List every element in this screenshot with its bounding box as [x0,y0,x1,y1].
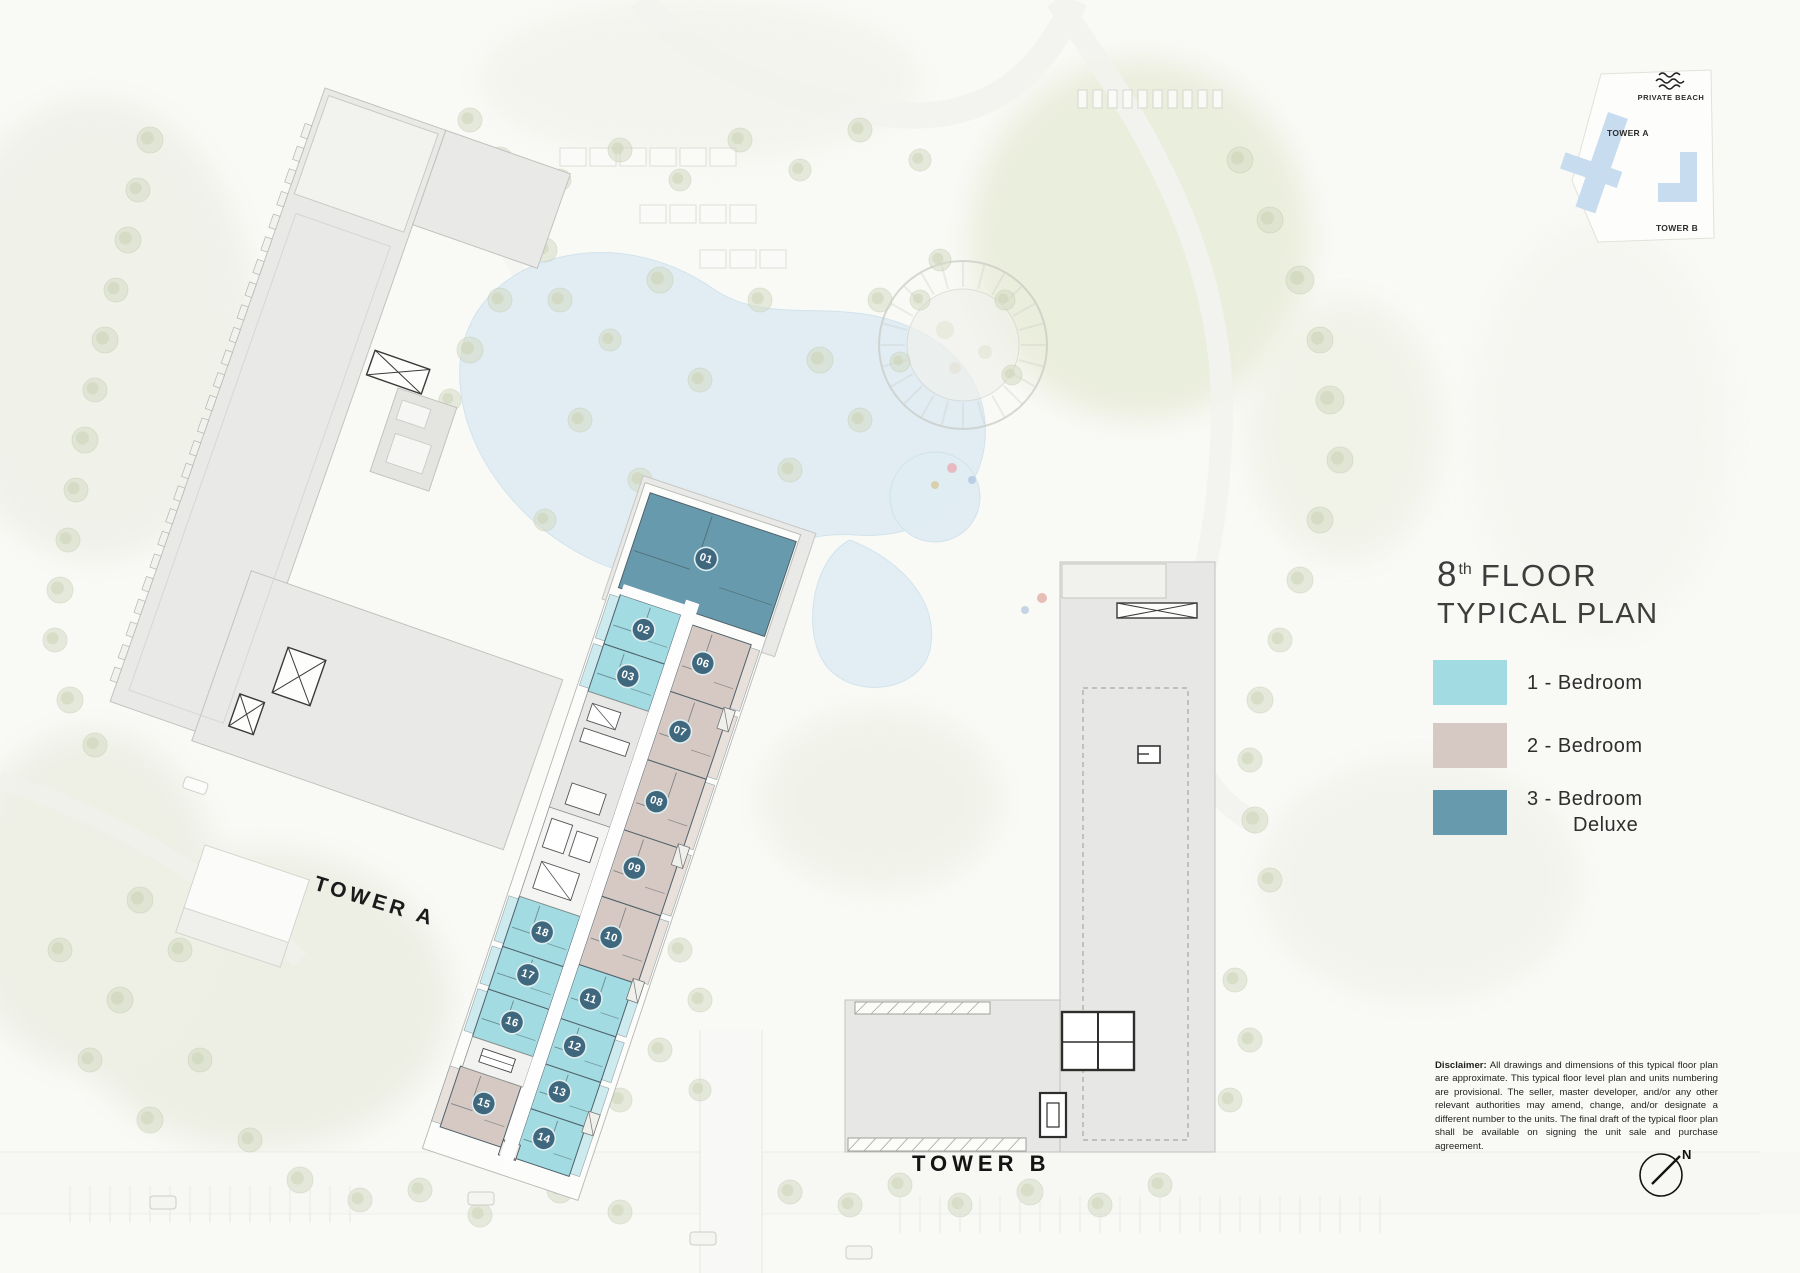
tree [1268,628,1292,652]
tree [348,1188,372,1212]
tree [56,528,80,552]
tree [995,290,1015,310]
tree [848,408,872,432]
tree [778,1180,802,1204]
floor-ordinal: th [1458,561,1471,578]
tree [457,337,483,363]
tree [647,267,673,293]
car [690,1232,716,1245]
tree [137,1107,163,1133]
tree [648,1038,672,1062]
north-compass: N [1630,1145,1700,1209]
tree [890,352,910,372]
tree [1238,748,1262,772]
tree [1242,807,1268,833]
cabana [640,205,666,223]
plan-title: 8thFLOOR TYPICAL PLAN [1437,552,1659,634]
tree [608,1200,632,1224]
legend-row-2br: 2 - Bedroom [1433,723,1643,768]
car [150,1196,176,1209]
tree [104,278,128,302]
tree [408,1178,432,1202]
tree [83,378,107,402]
legend-label-3br-line1: 3 - Bedroom [1527,786,1643,812]
tree [126,178,150,202]
tree [534,509,556,531]
cabana [670,205,696,223]
tree [137,127,163,153]
tree [287,1167,313,1193]
legend-label-3br-line2: Deluxe [1527,812,1643,838]
tree [1148,1173,1172,1197]
tree [838,1193,862,1217]
tree [568,408,592,432]
plan-title-line1: 8thFLOOR [1437,552,1659,594]
tree [1258,868,1282,892]
tree [64,478,88,502]
sun-lounger [1078,90,1087,108]
tree [1257,207,1283,233]
sun-lounger [1213,90,1222,108]
tree [78,1048,102,1072]
disclaimer-body: All drawings and dimensions of this typi… [1435,1060,1718,1152]
tree [688,368,712,392]
tree [1238,1028,1262,1052]
sun-lounger [1123,90,1132,108]
tree [48,938,72,962]
tree [1327,447,1353,473]
tree [1017,1179,1043,1205]
tree [548,288,572,312]
disclaimer-lead: Disclaimer: [1435,1060,1487,1071]
tree [107,987,133,1013]
tree [458,108,482,132]
pergola-deck [879,261,1047,429]
tree [1286,266,1314,294]
tree [1002,365,1022,385]
sun-lounger [1183,90,1192,108]
tree [608,138,632,162]
private-beach-label: PRIVATE BEACH [1638,93,1705,102]
tree [868,288,892,312]
tree [909,149,931,171]
cabana [730,205,756,223]
tree [72,427,98,453]
legend-row-1br: 1 - Bedroom [1433,660,1643,705]
sun-lounger [1168,90,1177,108]
disclaimer: Disclaimer: All drawings and dimensions … [1435,1059,1718,1153]
tree [1247,687,1273,713]
cabana [650,148,676,166]
tree [789,159,811,181]
cabana [710,148,736,166]
floor-word: FLOOR [1481,558,1598,593]
tree [57,687,83,713]
floor-plan-page: 01020306070809101112131415161718 8thFLOO… [0,0,1800,1273]
tree [689,1079,711,1101]
tree [43,628,67,652]
cabana [760,250,786,268]
sun-lounger [1153,90,1162,108]
tree [668,938,692,962]
compass-north-label: N [1682,1147,1691,1162]
car [846,1246,872,1259]
tree [1287,567,1313,593]
plan-title-line2: TYPICAL PLAN [1437,594,1659,634]
tree [910,290,930,310]
tree [83,733,107,757]
tree [92,327,118,353]
tree [929,249,951,271]
legend-label-2br: 2 - Bedroom [1527,733,1643,759]
roof-core [1138,746,1160,763]
legend-label-3br: 3 - Bedroom Deluxe [1527,786,1643,838]
cabana [730,250,756,268]
tree [1227,147,1253,173]
tree [748,288,772,312]
cabana [700,250,726,268]
sun-lounger [1138,90,1147,108]
key-plan: PRIVATE BEACH TOWER A TOWER B [1555,52,1730,252]
tree [127,887,153,913]
tree [888,1173,912,1197]
tree [1307,507,1333,533]
legend-label-1br: 1 - Bedroom [1527,670,1643,696]
legend-row-3br: 3 - Bedroom Deluxe [1433,786,1643,838]
tree [669,169,691,191]
cabana [680,148,706,166]
car [468,1192,494,1205]
tree [468,1203,492,1227]
tree [688,988,712,1012]
tree [728,128,752,152]
sun-lounger [1108,90,1117,108]
cabana [700,205,726,223]
key-plan-tower-b-label: TOWER B [1656,223,1698,233]
site-tower-b-label: TOWER B [912,1151,1050,1177]
tree [848,118,872,142]
tree [1316,386,1344,414]
tree [488,288,512,312]
legend: 1 - Bedroom 2 - Bedroom 3 - Bedroom Delu… [1433,660,1643,856]
tree [807,347,833,373]
cabana [560,148,586,166]
legend-swatch-2br [1433,723,1507,768]
floor-number: 8 [1437,555,1458,594]
legend-swatch-1br [1433,660,1507,705]
tree [1218,1088,1242,1112]
sun-lounger [1093,90,1102,108]
legend-swatch-3br [1433,790,1507,835]
tree [1223,968,1247,992]
key-plan-tower-a-label: TOWER A [1607,128,1649,138]
tree [238,1128,262,1152]
tree [599,329,621,351]
tree [778,458,802,482]
compass-needle [1652,1156,1680,1184]
tree [115,227,141,253]
sun-lounger [1198,90,1207,108]
tree [168,938,192,962]
tree [47,577,73,603]
tree [188,1048,212,1072]
tree [1307,327,1333,353]
